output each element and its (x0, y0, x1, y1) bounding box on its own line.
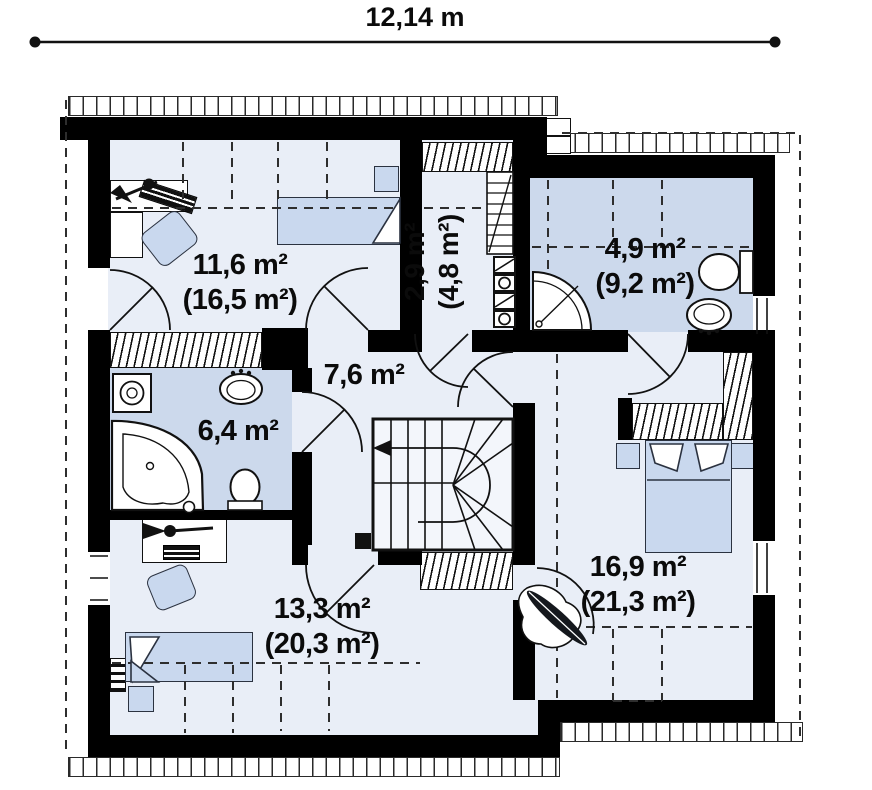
room-label-bathroom-top-right: 4,9 m² (9,2 m²) (595, 232, 694, 302)
room-area: 6,4 m² (198, 414, 279, 449)
room-area: 4,9 m² (595, 232, 694, 267)
room-label-corridor: 2,9 m² (4,8 m²) (398, 214, 466, 310)
room-gross-area: (20,3 m²) (265, 627, 380, 662)
room-gross-area: (4,8 m²) (432, 214, 466, 310)
room-label-bedroom-bottom-left: 13,3 m² (20,3 m²) (265, 592, 380, 662)
room-label-bedroom-top-left: 11,6 m² (16,5 m²) (183, 248, 298, 318)
washing-machine-icon (113, 374, 151, 412)
chimney-flues-icon (494, 257, 515, 327)
shower-icon (533, 272, 591, 330)
desk-lamp-icon-2 (143, 523, 213, 539)
toilet-icon (228, 470, 262, 511)
desk-lamp-icon (110, 179, 157, 204)
room-area: 13,3 m² (265, 592, 380, 627)
dimension-width-label: 12,14 m (365, 2, 464, 33)
bathtub-icon (112, 421, 203, 513)
room-area: 7,6 m² (324, 358, 405, 393)
room-area: 11,6 m² (183, 248, 298, 283)
toilet-icon-2 (699, 251, 753, 293)
room-area: 2,9 m² (398, 214, 432, 310)
room-label-hall: 7,6 m² (324, 358, 405, 393)
plan-linework (0, 0, 872, 790)
floor-plan: 12,14 m 11,6 m² (16,5 m²) 2,9 m² (4,8 m²… (0, 0, 872, 790)
loft-ladder-icon (487, 172, 513, 254)
room-gross-area: (16,5 m²) (183, 283, 298, 318)
room-gross-area: (9,2 m²) (595, 267, 694, 302)
room-gross-area: (21,3 m²) (581, 585, 696, 620)
sink-icon-2 (687, 299, 731, 335)
dimension-line (30, 37, 781, 48)
staircase (355, 419, 513, 550)
room-area: 16,9 m² (581, 550, 696, 585)
room-label-bedroom-bottom-right: 16,9 m² (21,3 m²) (581, 550, 696, 620)
room-label-bathroom-left: 6,4 m² (198, 414, 279, 449)
sink-icon (220, 369, 262, 404)
